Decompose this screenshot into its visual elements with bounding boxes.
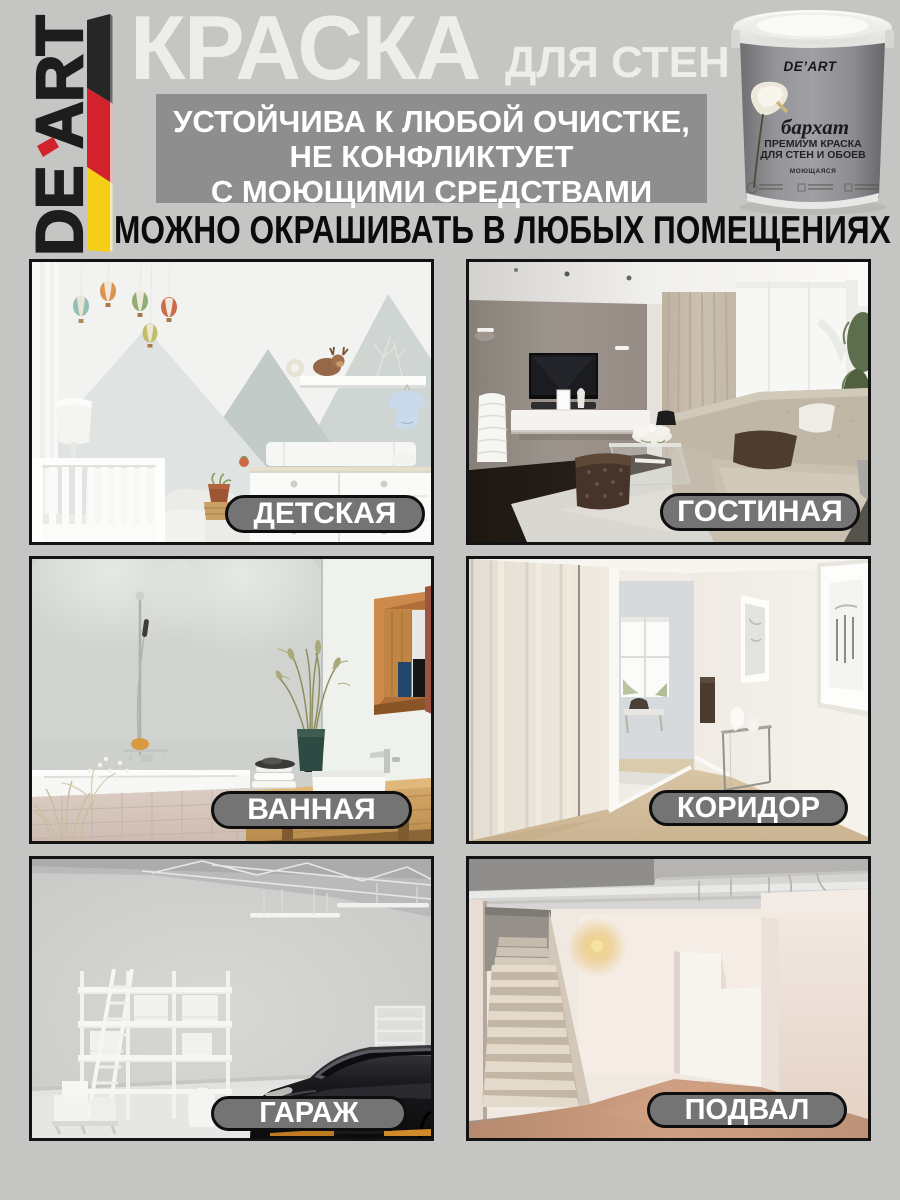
svg-text:МОЮЩАЯСЯ: МОЮЩАЯСЯ (790, 168, 837, 175)
svg-text:бархат: бархат (781, 115, 849, 139)
svg-text:ДЛЯ СТЕН И ОБОЕВ: ДЛЯ СТЕН И ОБОЕВ (760, 149, 866, 161)
svg-text:DE’ART: DE’ART (783, 59, 837, 74)
